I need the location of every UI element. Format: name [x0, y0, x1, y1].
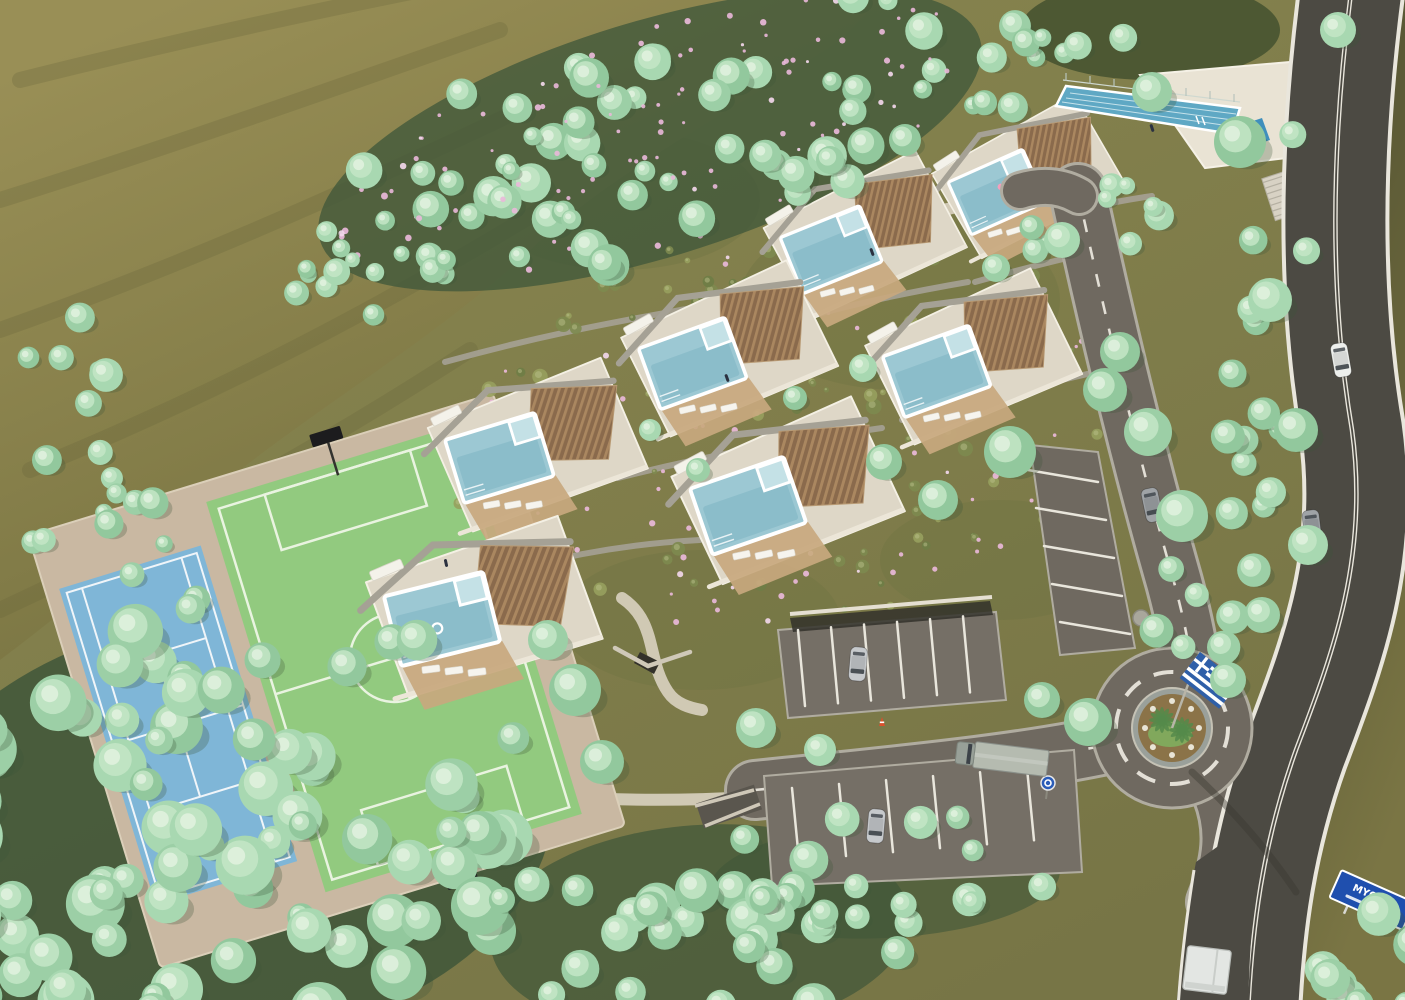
tree-highlight — [1244, 560, 1254, 570]
tree-highlight — [378, 904, 394, 920]
tree-highlight — [151, 732, 159, 740]
tree-highlight — [1092, 376, 1105, 389]
pink-flower — [685, 18, 691, 24]
tree-highlight — [1134, 417, 1148, 431]
pink-flower — [654, 24, 659, 29]
shrub-highlight — [567, 314, 570, 317]
tree-highlight — [569, 957, 580, 968]
pink-flower — [810, 121, 815, 126]
tree-highlight — [845, 103, 853, 111]
tree-highlight — [873, 451, 884, 462]
tree-highlight — [71, 308, 80, 317]
pink-flower — [688, 48, 693, 53]
pink-flower — [642, 155, 647, 160]
pink-flower — [935, 12, 938, 15]
tree-highlight — [153, 888, 166, 901]
tree-highlight — [1140, 80, 1152, 92]
tree-highlight — [565, 213, 571, 219]
pink-flower — [726, 256, 730, 260]
pink-flower — [723, 261, 729, 267]
tree-highlight — [691, 463, 698, 470]
tree-highlight — [369, 267, 375, 273]
tree-highlight — [1327, 19, 1338, 30]
pink-flower — [912, 450, 917, 455]
tree-highlight — [264, 832, 274, 842]
tree-highlight — [500, 158, 506, 164]
pink-flower — [405, 235, 412, 242]
pink-flower — [677, 92, 680, 95]
tree-highlight — [913, 19, 924, 30]
shrub-highlight — [664, 556, 669, 561]
tree-highlight — [467, 819, 480, 832]
pink-flower — [911, 8, 916, 13]
tree-highlight — [382, 631, 393, 642]
tree-highlight — [37, 533, 44, 540]
pink-flower — [998, 543, 1004, 549]
tree-highlight — [755, 891, 763, 899]
cone-stripe — [880, 722, 884, 724]
tree-highlight — [112, 709, 122, 719]
tree-highlight — [1031, 689, 1042, 700]
pink-flower — [712, 599, 717, 604]
tree-highlight — [785, 163, 796, 174]
pink-flower — [516, 182, 521, 187]
tree-highlight — [966, 844, 973, 851]
pink-flower — [419, 136, 422, 139]
pink-flower — [678, 53, 682, 57]
truck-cab — [955, 741, 976, 765]
parked-car-south-bay — [866, 808, 886, 843]
pink-flower — [892, 105, 896, 109]
pink-flower — [677, 571, 683, 577]
pink-flower — [780, 131, 786, 137]
tree-highlight — [335, 654, 347, 666]
pink-flower — [743, 49, 746, 52]
tree-highlight — [336, 243, 341, 248]
shrub-highlight — [665, 286, 669, 290]
tree-highlight — [1257, 286, 1270, 299]
white-rock — [1150, 744, 1156, 750]
tree-highlight — [850, 909, 857, 916]
shrub-highlight — [1093, 430, 1098, 435]
pink-flower — [803, 571, 809, 577]
tree-highlight — [739, 937, 749, 947]
pink-flower — [381, 193, 388, 200]
tree-highlight — [1254, 404, 1264, 414]
shrub-highlight — [674, 544, 680, 550]
tree-highlight — [159, 539, 164, 544]
tree-highlight — [543, 986, 551, 994]
pink-flower — [453, 208, 458, 213]
tree-highlight — [1051, 229, 1062, 240]
pink-flower — [596, 84, 600, 88]
pink-flower — [709, 168, 714, 173]
tree-highlight — [832, 808, 842, 818]
tree-highlight — [442, 822, 451, 831]
pink-flower — [946, 471, 949, 474]
pink-flower — [857, 570, 860, 573]
shrub-highlight — [879, 581, 882, 584]
pink-flower — [504, 370, 507, 373]
pink-flower — [389, 189, 393, 193]
tree-highlight — [464, 208, 472, 216]
tree-highlight — [994, 436, 1010, 452]
pink-flower — [574, 547, 580, 553]
tree-highlight — [663, 176, 669, 182]
tree-highlight — [207, 676, 221, 690]
pink-flower — [673, 619, 679, 625]
tree-highlight — [1318, 967, 1330, 979]
shrub-highlight — [906, 437, 910, 441]
pink-flower — [834, 129, 840, 135]
tree-highlight — [926, 488, 938, 500]
pink-flower — [765, 618, 770, 623]
pink-flower — [975, 549, 979, 553]
tree-highlight — [111, 487, 117, 493]
pink-flower — [797, 148, 800, 151]
tree-highlight — [452, 84, 461, 93]
pink-flower — [603, 353, 609, 359]
tree-highlight — [513, 250, 519, 256]
pink-flower — [671, 175, 676, 180]
pink-flower — [890, 570, 896, 576]
tree-highlight — [352, 824, 367, 839]
tree-highlight — [296, 917, 309, 930]
pink-flower — [816, 37, 821, 42]
tree-highlight — [988, 259, 996, 267]
tree-highlight — [1296, 533, 1308, 545]
tree-highlight — [849, 879, 856, 886]
shrub-highlight — [653, 470, 655, 472]
pink-flower — [609, 113, 612, 116]
tree-highlight — [1224, 365, 1232, 373]
shrub-highlight — [630, 315, 633, 318]
pink-flower — [655, 243, 661, 249]
pink-flower — [656, 103, 660, 107]
tree-highlight — [283, 800, 298, 815]
tree-highlight — [1251, 604, 1262, 615]
tree-highlight — [252, 649, 263, 660]
tree-highlight — [1214, 637, 1224, 647]
tree-highlight — [527, 131, 533, 137]
tree-highlight — [128, 495, 136, 503]
pink-flower — [686, 525, 691, 530]
tree-highlight — [104, 749, 120, 765]
pink-flower — [727, 13, 733, 19]
pink-flower — [713, 184, 718, 189]
tree-highlight — [220, 947, 234, 961]
shrub-highlight — [990, 478, 995, 483]
pink-flower — [1030, 498, 1034, 502]
pink-flower — [590, 177, 595, 182]
tree-highlight — [911, 812, 921, 822]
tree-highlight — [421, 248, 429, 256]
tree-highlight — [1262, 483, 1271, 492]
white-rock — [1169, 752, 1175, 758]
pink-flower — [897, 16, 901, 20]
car-roof — [851, 655, 866, 669]
pink-flower — [782, 61, 786, 65]
pink-flower — [769, 97, 775, 103]
tree-highlight — [1005, 16, 1015, 26]
tree-highlight — [965, 895, 971, 901]
pink-flower — [879, 29, 885, 35]
tree-highlight — [241, 726, 254, 739]
shrub-highlight — [862, 550, 865, 553]
tree-highlight — [320, 279, 327, 286]
shrub-highlight — [915, 534, 920, 539]
tree-highlight — [182, 599, 191, 608]
pink-flower — [414, 156, 419, 161]
pink-flower — [928, 57, 931, 60]
tree-highlight — [686, 207, 697, 218]
tree-highlight — [1058, 47, 1064, 53]
tree-highlight — [735, 906, 748, 919]
tree-highlight — [609, 921, 620, 932]
pink-flower — [616, 130, 620, 134]
pink-flower — [888, 72, 893, 77]
tree-highlight — [172, 678, 186, 692]
tree-highlight — [106, 650, 120, 664]
pink-flower — [1075, 345, 1078, 348]
pink-flower — [971, 498, 974, 501]
tree-highlight — [623, 186, 632, 195]
tree-highlight — [684, 877, 697, 890]
tree-highlight — [180, 813, 196, 829]
tree-highlight — [249, 772, 265, 788]
tree-highlight — [99, 929, 109, 939]
pink-flower — [556, 189, 560, 193]
tree-highlight — [125, 567, 132, 574]
pink-flower — [790, 57, 795, 62]
tree-highlight — [116, 870, 126, 880]
tree-highlight — [405, 627, 417, 639]
white-rock — [1150, 706, 1156, 712]
tree-highlight — [1163, 561, 1171, 569]
pink-flower — [680, 554, 686, 560]
tree-highlight — [96, 883, 106, 893]
tree-highlight — [559, 674, 575, 690]
white-rock — [1188, 706, 1194, 712]
pink-flower — [620, 396, 625, 401]
pink-flower — [564, 120, 567, 123]
tree-highlight — [1190, 587, 1197, 594]
tree-highlight — [163, 853, 178, 868]
tree-highlight — [536, 628, 548, 640]
pink-flower — [842, 122, 846, 126]
tree-highlight — [642, 50, 653, 61]
shrub-highlight — [869, 401, 876, 408]
pink-flower — [944, 69, 949, 74]
pink-flower — [416, 215, 422, 221]
tree-highlight — [367, 308, 373, 314]
tree-highlight — [1104, 178, 1111, 185]
tree-highlight — [623, 904, 634, 915]
pink-flower — [512, 208, 518, 214]
pink-flower — [821, 134, 824, 137]
tree-highlight — [1146, 620, 1156, 630]
pink-flower — [779, 199, 782, 202]
tree-highlight — [951, 810, 958, 817]
tree-highlight — [822, 151, 830, 159]
tree-highlight — [1285, 126, 1293, 134]
pink-flower — [692, 187, 697, 192]
tree-highlight — [587, 158, 594, 165]
parked-car-north-bay — [848, 646, 868, 681]
tree-highlight — [320, 225, 326, 231]
pink-flower — [585, 506, 590, 511]
tree-highlight — [595, 253, 605, 263]
pink-flower — [535, 104, 541, 110]
pink-flower — [649, 520, 655, 526]
tree-highlight — [815, 905, 824, 914]
tree-highlight — [1108, 340, 1120, 352]
tree-highlight — [508, 99, 517, 108]
tree-highlight — [54, 977, 66, 989]
pink-flower — [655, 156, 659, 160]
shrub-highlight — [836, 557, 841, 562]
resort-aerial-scene: ΜΥΘΙΚΑ — [0, 0, 1405, 1000]
tree-highlight — [756, 146, 766, 156]
tree-highlight — [678, 911, 688, 921]
tree-highlight — [348, 255, 352, 259]
tree-highlight — [1224, 126, 1240, 142]
tree-highlight — [855, 359, 863, 367]
tree-highlight — [797, 848, 809, 860]
tree-highlight — [1366, 901, 1379, 914]
pink-flower — [554, 83, 559, 88]
tree-highlight — [420, 198, 431, 209]
car-roof — [869, 817, 884, 831]
tree-highlight — [1018, 34, 1026, 42]
pink-flower — [899, 552, 903, 556]
tree-highlight — [1166, 500, 1182, 516]
pink-flower — [481, 112, 486, 117]
pink-flower — [656, 487, 660, 491]
shrub-highlight — [858, 562, 864, 568]
pink-flower — [589, 52, 595, 58]
roundabout-sign — [1041, 776, 1055, 790]
tree-highlight — [1176, 639, 1183, 646]
tree-highlight — [1074, 707, 1088, 721]
white-truck-bottom — [1182, 945, 1231, 994]
tree-highlight — [621, 983, 630, 992]
pink-flower — [658, 129, 664, 135]
pink-flower — [670, 592, 673, 595]
pink-flower — [658, 119, 663, 124]
tree-highlight — [977, 95, 985, 103]
pink-flower — [741, 43, 744, 46]
tree-highlight — [1034, 878, 1042, 886]
tree-highlight — [578, 236, 590, 248]
tree-highlight — [556, 205, 563, 212]
tree-highlight — [521, 873, 532, 884]
aerial-render-image: ΜΥΘΙΚΑ — [0, 0, 1405, 1000]
tree-highlight — [855, 134, 866, 145]
tree-highlight — [888, 942, 898, 952]
tree-highlight — [1028, 243, 1036, 251]
shrub-highlight — [691, 580, 695, 584]
tree-highlight — [439, 254, 445, 260]
pink-flower — [661, 469, 665, 473]
pink-flower — [916, 124, 919, 127]
tree-highlight — [569, 112, 579, 122]
tree-highlight — [895, 130, 905, 140]
tree-highlight — [1121, 180, 1126, 185]
tree-highlight — [105, 471, 112, 478]
pink-flower — [855, 326, 859, 330]
tree-highlight — [119, 614, 136, 631]
pink-flower — [437, 113, 441, 117]
internal-road — [1020, 187, 1079, 196]
pink-flower — [976, 538, 980, 542]
pink-flower — [442, 166, 447, 171]
tree-highlight — [397, 249, 402, 254]
tree-highlight — [415, 166, 422, 173]
tree-highlight — [353, 159, 364, 170]
shrub-highlight — [705, 277, 710, 282]
tree-highlight — [1024, 220, 1031, 227]
tree-highlight — [54, 350, 62, 358]
pink-flower — [884, 58, 890, 64]
pink-flower — [491, 149, 494, 152]
tree-highlight — [810, 740, 820, 750]
tree-highlight — [1123, 236, 1130, 243]
tree-highlight — [463, 888, 480, 905]
tree-highlight — [96, 365, 106, 375]
shrub-highlight — [972, 535, 976, 539]
tree-highlight — [504, 728, 514, 738]
tree-highlight — [80, 395, 88, 403]
pink-flower — [500, 197, 505, 202]
tree-highlight — [443, 175, 451, 183]
pink-flower — [526, 267, 532, 273]
tree-highlight — [382, 955, 399, 972]
tree-highlight — [294, 816, 302, 824]
pink-flower — [628, 159, 632, 163]
pink-flower — [786, 69, 791, 74]
shrub-highlight — [730, 280, 734, 284]
shrub-highlight — [572, 324, 577, 329]
shrub-highlight — [866, 391, 872, 397]
pink-flower — [715, 607, 720, 612]
tree-highlight — [436, 768, 452, 784]
tree-highlight — [143, 493, 152, 502]
pink-flower — [793, 579, 798, 584]
tree-highlight — [289, 285, 296, 292]
pink-flower — [760, 19, 766, 25]
shrub-highlight — [960, 443, 967, 450]
pink-flower — [1053, 433, 1057, 437]
tree-highlight — [736, 830, 745, 839]
white-rock — [1142, 725, 1148, 731]
white-rock — [1188, 744, 1194, 750]
tree-highlight — [1, 888, 13, 900]
tree-highlight — [539, 208, 550, 219]
tree-highlight — [917, 83, 923, 89]
villa-jacuzzi — [454, 574, 487, 605]
shrub-highlight — [518, 369, 522, 373]
tree-highlight — [41, 685, 58, 702]
tree-highlight — [227, 847, 245, 865]
tree-highlight — [100, 515, 109, 524]
tree-highlight — [1037, 32, 1042, 37]
tree-highlight — [494, 892, 502, 900]
tree-highlight — [441, 852, 455, 866]
shrub-highlight — [923, 542, 927, 546]
shrub-highlight — [596, 585, 602, 591]
pink-flower — [839, 37, 845, 43]
